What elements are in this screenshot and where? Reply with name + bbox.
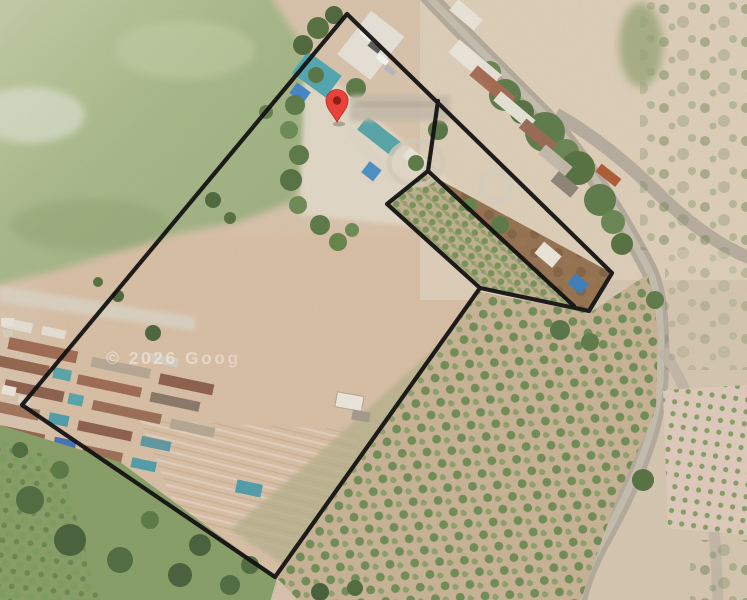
map-watermark: © 2026 Goog [106,348,241,368]
satellite-map[interactable]: © 2026 Goog [0,0,747,600]
pin-inner-dot [333,96,341,104]
map-canvas: © 2026 Goog [0,0,747,600]
satellite-imagery [0,0,747,600]
